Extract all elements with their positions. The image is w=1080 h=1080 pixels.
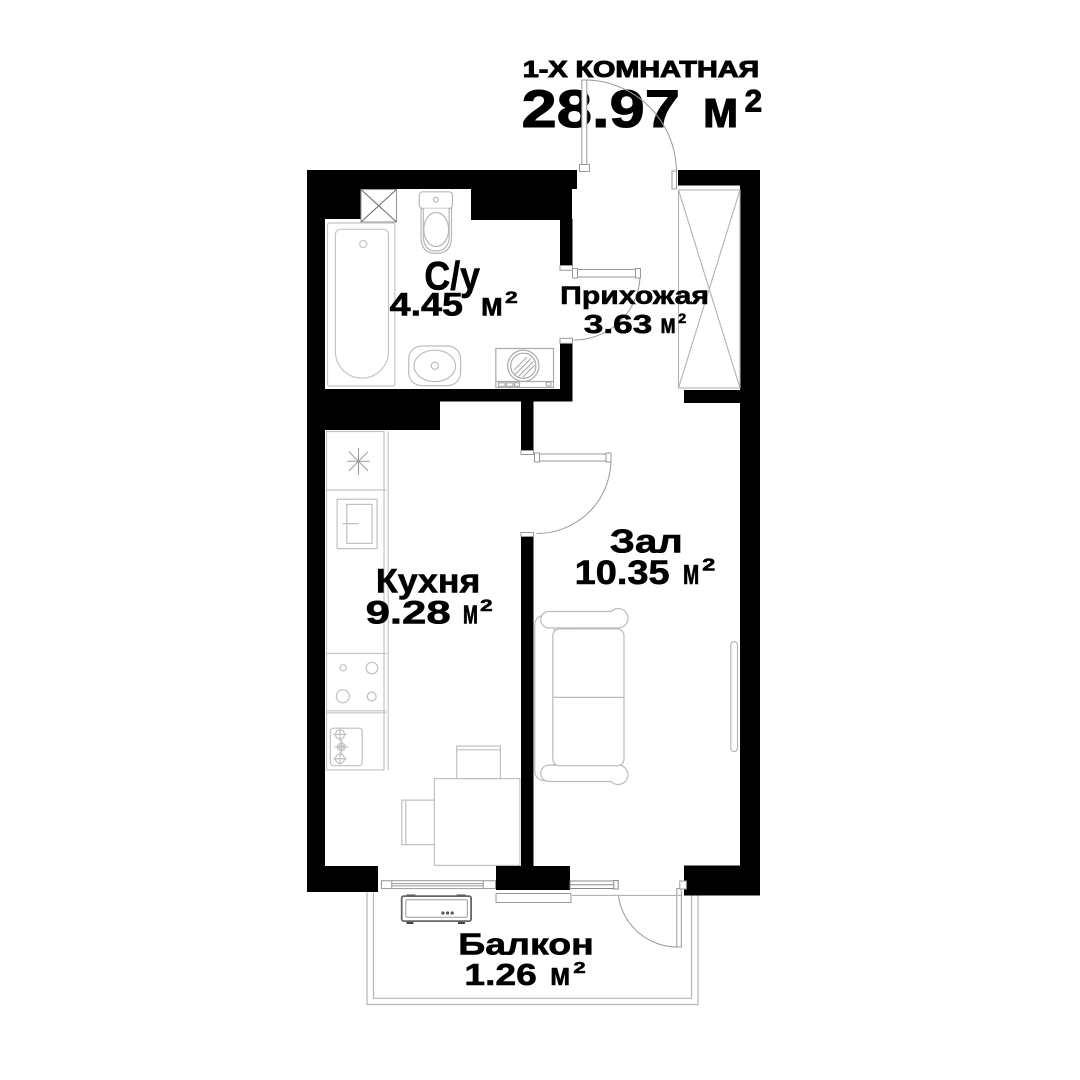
svg-text:28.97: 28.97 xyxy=(522,80,681,139)
svg-text:9.28: 9.28 xyxy=(366,593,451,630)
svg-text:2: 2 xyxy=(573,960,585,977)
svg-text:2: 2 xyxy=(505,288,518,307)
svg-text:м: м xyxy=(481,287,503,324)
svg-text:2: 2 xyxy=(678,311,686,326)
svg-text:м: м xyxy=(463,593,479,631)
svg-text:10.35: 10.35 xyxy=(575,554,670,592)
svg-text:3.63: 3.63 xyxy=(584,309,653,339)
svg-text:4.45: 4.45 xyxy=(390,287,463,323)
svg-text:2: 2 xyxy=(480,596,493,615)
svg-text:1.26: 1.26 xyxy=(464,957,536,992)
svg-text:м: м xyxy=(660,308,676,339)
svg-text:2: 2 xyxy=(745,83,763,118)
svg-text:2: 2 xyxy=(702,555,715,575)
svg-text:м: м xyxy=(703,80,739,139)
svg-text:м: м xyxy=(550,955,570,992)
svg-text:Прихожая: Прихожая xyxy=(560,282,709,310)
svg-text:м: м xyxy=(683,551,700,592)
svg-text:1-Х КОМНАТНАЯ: 1-Х КОМНАТНАЯ xyxy=(523,56,759,82)
